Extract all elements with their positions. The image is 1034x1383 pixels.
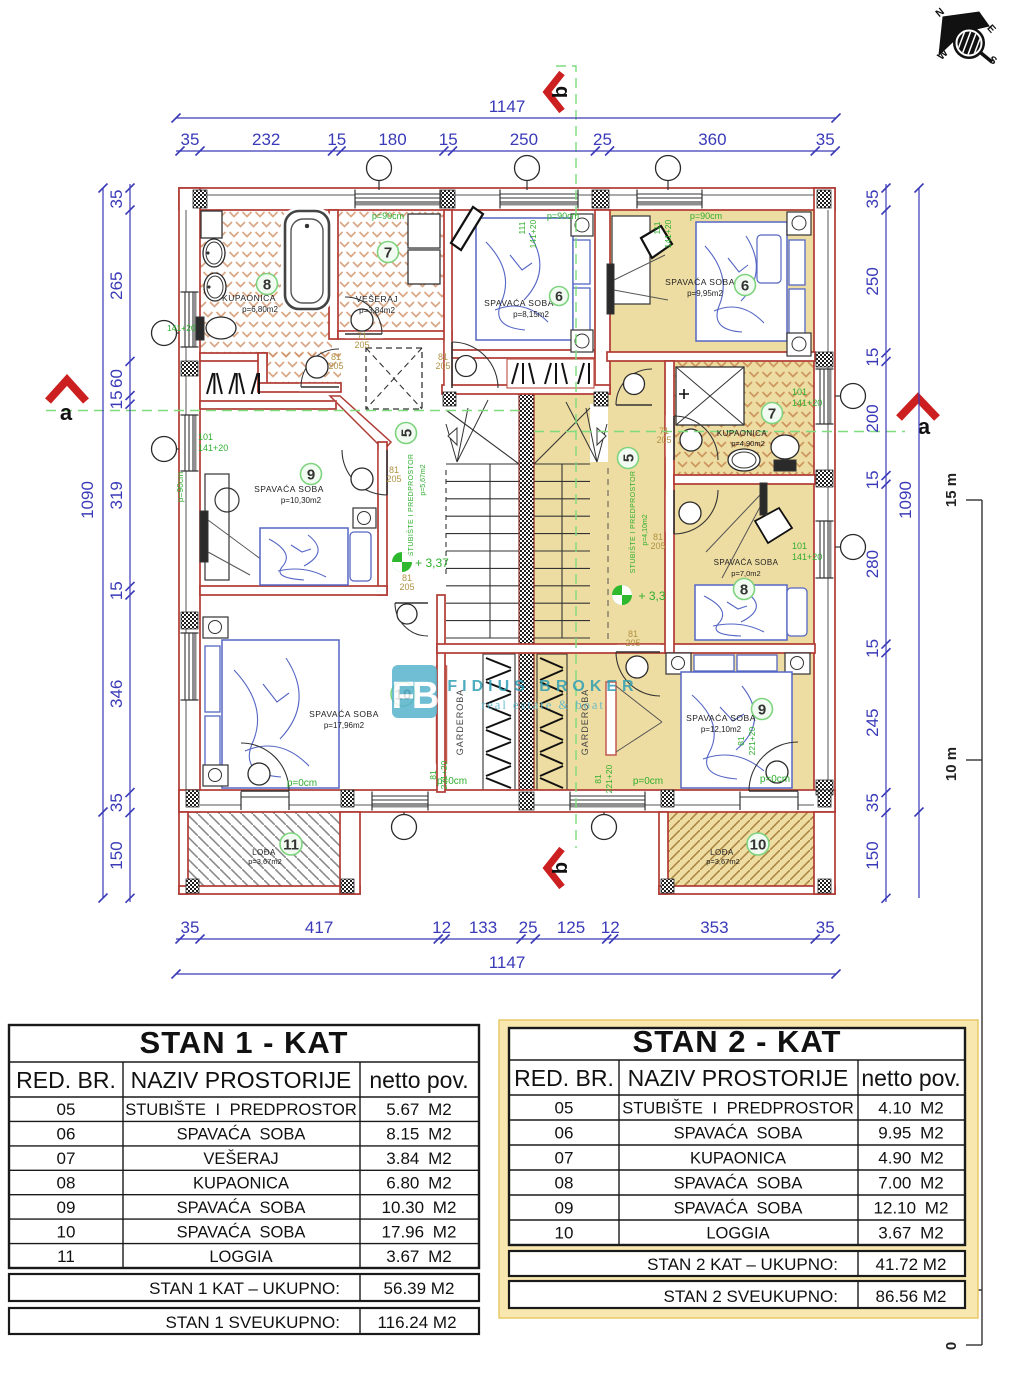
svg-text:KUPAONICA: KUPAONICA bbox=[222, 293, 276, 303]
svg-text:09: 09 bbox=[555, 1199, 574, 1218]
svg-text:KUPAONICA: KUPAONICA bbox=[690, 1150, 786, 1168]
svg-text:NAZIV PROSTORIJE: NAZIV PROSTORIJE bbox=[628, 1065, 849, 1091]
svg-text:141+20: 141+20 bbox=[792, 398, 822, 408]
svg-text:3.67 M2: 3.67 M2 bbox=[386, 1247, 451, 1266]
svg-text:205: 205 bbox=[328, 361, 343, 371]
svg-text:150: 150 bbox=[107, 841, 126, 869]
svg-text:17.96 M2: 17.96 M2 bbox=[382, 1222, 457, 1241]
svg-text:10 m: 10 m bbox=[943, 747, 960, 781]
svg-text:RED. BR.: RED. BR. bbox=[514, 1065, 614, 1091]
svg-text:VEŠERAJ: VEŠERAJ bbox=[203, 1149, 278, 1168]
svg-text:3.84 M2: 3.84 M2 bbox=[386, 1149, 451, 1168]
svg-text:5: 5 bbox=[620, 454, 637, 462]
svg-text:250: 250 bbox=[510, 130, 538, 149]
svg-text:p=0cm: p=0cm bbox=[287, 778, 317, 789]
svg-text:205: 205 bbox=[435, 361, 450, 371]
svg-text:35: 35 bbox=[181, 130, 200, 149]
svg-text:11: 11 bbox=[57, 1247, 75, 1266]
svg-text:150: 150 bbox=[863, 841, 882, 869]
svg-text:SPAVAĆA SOBA: SPAVAĆA SOBA bbox=[674, 1199, 803, 1218]
svg-text:15: 15 bbox=[107, 390, 126, 409]
svg-text:4.90 M2: 4.90 M2 bbox=[878, 1149, 943, 1168]
svg-text:221+20: 221+20 bbox=[747, 726, 757, 755]
svg-text:15: 15 bbox=[327, 130, 346, 149]
svg-text:p=7,0m2: p=7,0m2 bbox=[731, 569, 760, 578]
svg-text:+ 3,37: + 3,37 bbox=[415, 556, 449, 570]
svg-text:06: 06 bbox=[555, 1124, 574, 1143]
svg-text:15: 15 bbox=[863, 348, 882, 367]
svg-text:56.39 M2: 56.39 M2 bbox=[384, 1279, 455, 1298]
svg-text:0: 0 bbox=[943, 1342, 960, 1350]
svg-text:1090: 1090 bbox=[78, 481, 97, 519]
svg-text:FB: FB bbox=[392, 675, 438, 717]
svg-text:360: 360 bbox=[698, 130, 726, 149]
svg-text:SPAVAĆA SOBA: SPAVAĆA SOBA bbox=[177, 1125, 306, 1144]
svg-text:141+20: 141+20 bbox=[198, 443, 228, 453]
svg-text:15 m: 15 m bbox=[943, 473, 960, 507]
svg-text:12: 12 bbox=[432, 918, 451, 937]
svg-text:15: 15 bbox=[107, 581, 126, 600]
svg-text:205: 205 bbox=[650, 541, 665, 551]
svg-text:b: b bbox=[550, 862, 572, 874]
svg-text:p=0cm: p=0cm bbox=[760, 774, 790, 785]
svg-text:10: 10 bbox=[750, 836, 767, 853]
svg-text:a: a bbox=[918, 414, 931, 439]
svg-text:180: 180 bbox=[378, 130, 406, 149]
svg-text:205: 205 bbox=[399, 582, 414, 592]
svg-text:417: 417 bbox=[305, 918, 333, 937]
svg-text:1147: 1147 bbox=[489, 953, 526, 972]
svg-text:125: 125 bbox=[557, 918, 585, 937]
svg-text:205: 205 bbox=[625, 638, 640, 648]
svg-text:SPAVAĆA SOBA: SPAVAĆA SOBA bbox=[177, 1222, 306, 1241]
svg-text:8: 8 bbox=[263, 276, 271, 293]
svg-text:101: 101 bbox=[792, 387, 807, 397]
svg-text:KUPAONICA: KUPAONICA bbox=[717, 429, 767, 438]
svg-text:FIDIUS BROKER: FIDIUS BROKER bbox=[447, 678, 638, 695]
svg-text:a: a bbox=[60, 400, 73, 425]
svg-text:p=90cm: p=90cm bbox=[547, 211, 579, 221]
svg-text:41.72 M2: 41.72 M2 bbox=[876, 1255, 947, 1274]
svg-text:9: 9 bbox=[758, 701, 766, 718]
svg-text:35: 35 bbox=[107, 190, 126, 209]
svg-text:353: 353 bbox=[700, 918, 728, 937]
svg-text:LOGGIA: LOGGIA bbox=[209, 1248, 272, 1266]
svg-text:p=90cm: p=90cm bbox=[175, 472, 185, 502]
svg-text:200: 200 bbox=[863, 404, 882, 432]
svg-text:7: 7 bbox=[384, 244, 392, 261]
svg-text:1090: 1090 bbox=[896, 481, 915, 519]
svg-text:VEŠERAJ: VEŠERAJ bbox=[356, 294, 398, 304]
svg-text:221+20: 221+20 bbox=[604, 764, 614, 793]
svg-text:07: 07 bbox=[57, 1149, 76, 1168]
svg-text:SPAVAĆA SOBA: SPAVAĆA SOBA bbox=[484, 298, 554, 308]
svg-text:141+20: 141+20 bbox=[792, 552, 822, 562]
svg-text:+ 3,3: + 3,3 bbox=[638, 589, 665, 603]
svg-text:6: 6 bbox=[741, 277, 749, 294]
svg-text:SPAVAĆA SOBA: SPAVAĆA SOBA bbox=[674, 1174, 803, 1193]
svg-text:LOĐA: LOĐA bbox=[710, 848, 734, 857]
svg-text:SPAVAĆA SOBA: SPAVAĆA SOBA bbox=[714, 558, 779, 567]
svg-text:RED. BR.: RED. BR. bbox=[16, 1067, 116, 1093]
svg-text:05: 05 bbox=[57, 1100, 76, 1119]
svg-text:205: 205 bbox=[354, 340, 369, 350]
svg-text:LOGGIA: LOGGIA bbox=[706, 1225, 769, 1243]
svg-text:141+20: 141+20 bbox=[663, 219, 673, 248]
svg-text:b: b bbox=[550, 86, 572, 98]
svg-text:p=9,95m2: p=9,95m2 bbox=[687, 289, 723, 298]
svg-text:280: 280 bbox=[863, 550, 882, 578]
svg-text:133: 133 bbox=[469, 918, 497, 937]
svg-text:35: 35 bbox=[863, 793, 882, 812]
svg-text:9: 9 bbox=[307, 466, 315, 483]
svg-text:SPAVAĆA SOBA: SPAVAĆA SOBA bbox=[686, 713, 756, 723]
svg-text:250: 250 bbox=[863, 267, 882, 295]
svg-text:p=4,10m2: p=4,10m2 bbox=[642, 514, 649, 545]
svg-text:p=8,15m2: p=8,15m2 bbox=[513, 310, 549, 319]
svg-text:35: 35 bbox=[181, 918, 200, 937]
svg-text:STAN 2 - KAT: STAN 2 - KAT bbox=[633, 1024, 842, 1059]
svg-text:5.67 M2: 5.67 M2 bbox=[386, 1100, 451, 1119]
svg-text:15: 15 bbox=[863, 639, 882, 658]
svg-text:60: 60 bbox=[107, 369, 126, 388]
svg-text:12: 12 bbox=[601, 918, 620, 937]
svg-text:GARDEROBA: GARDEROBA bbox=[455, 689, 465, 756]
svg-text:1147: 1147 bbox=[489, 97, 526, 116]
svg-text:35: 35 bbox=[863, 190, 882, 209]
svg-text:10: 10 bbox=[555, 1224, 574, 1243]
svg-text:STUBIŠTE I PREDPROSTOR: STUBIŠTE I PREDPROSTOR bbox=[628, 471, 637, 574]
svg-text:SPAVAĆA SOBA: SPAVAĆA SOBA bbox=[254, 484, 324, 494]
svg-text:205: 205 bbox=[656, 435, 671, 445]
svg-text:6: 6 bbox=[555, 288, 563, 304]
svg-text:35: 35 bbox=[816, 918, 835, 937]
svg-text:STAN 1 SVEUKUPNO:: STAN 1 SVEUKUPNO: bbox=[166, 1313, 340, 1332]
svg-text:p=10,30m2: p=10,30m2 bbox=[281, 496, 322, 505]
svg-text:141+20: 141+20 bbox=[528, 219, 538, 248]
svg-text:NAZIV PROSTORIJE: NAZIV PROSTORIJE bbox=[131, 1067, 352, 1093]
svg-text:81: 81 bbox=[593, 774, 603, 784]
svg-text:10.30 M2: 10.30 M2 bbox=[382, 1198, 457, 1217]
svg-text:205: 205 bbox=[386, 474, 401, 484]
svg-text:141+20: 141+20 bbox=[167, 323, 196, 333]
svg-text:netto pov.: netto pov. bbox=[369, 1067, 468, 1093]
svg-text:35: 35 bbox=[816, 130, 835, 149]
svg-text:265: 265 bbox=[107, 272, 126, 300]
svg-text:p=4,90m2: p=4,90m2 bbox=[731, 439, 765, 448]
svg-text:111: 111 bbox=[652, 221, 662, 234]
svg-text:LOĐA: LOĐA bbox=[252, 848, 276, 857]
svg-text:STAN 2 SVEUKUPNO:: STAN 2 SVEUKUPNO: bbox=[664, 1287, 838, 1306]
svg-text:245: 245 bbox=[863, 709, 882, 737]
svg-text:netto pov.: netto pov. bbox=[861, 1065, 960, 1091]
svg-text:08: 08 bbox=[57, 1174, 76, 1193]
svg-text:p=3,67m2: p=3,67m2 bbox=[706, 857, 740, 866]
svg-text:SPAVAĆA SOBA: SPAVAĆA SOBA bbox=[665, 277, 735, 287]
svg-text:7: 7 bbox=[768, 405, 776, 422]
svg-text:4.10 M2: 4.10 M2 bbox=[878, 1099, 943, 1118]
svg-text:STUBIŠTE I PREDPROSTOR: STUBIŠTE I PREDPROSTOR bbox=[622, 1099, 854, 1118]
svg-text:101: 101 bbox=[792, 541, 807, 551]
svg-text:KUPAONICA: KUPAONICA bbox=[193, 1175, 289, 1193]
svg-text:6.80 M2: 6.80 M2 bbox=[386, 1174, 451, 1193]
svg-text:07: 07 bbox=[555, 1149, 574, 1168]
svg-text:8.15 M2: 8.15 M2 bbox=[386, 1125, 451, 1144]
svg-text:8: 8 bbox=[740, 581, 748, 598]
svg-text:STAN 1 - KAT: STAN 1 - KAT bbox=[140, 1025, 349, 1060]
svg-text:25: 25 bbox=[593, 130, 612, 149]
svg-text:p=3,67m2: p=3,67m2 bbox=[248, 857, 282, 866]
svg-text:10: 10 bbox=[57, 1222, 76, 1241]
svg-text:SPAVAĆA SOBA: SPAVAĆA SOBA bbox=[309, 709, 379, 719]
svg-text:25: 25 bbox=[519, 918, 538, 937]
svg-text:p=90cm: p=90cm bbox=[690, 211, 722, 221]
svg-text:15: 15 bbox=[439, 130, 458, 149]
svg-text:p=0cm: p=0cm bbox=[633, 776, 663, 787]
svg-text:346: 346 bbox=[107, 680, 126, 708]
svg-text:232: 232 bbox=[252, 130, 280, 149]
svg-text:05: 05 bbox=[555, 1099, 574, 1118]
svg-text:9.95 M2: 9.95 M2 bbox=[878, 1124, 943, 1143]
svg-text:09: 09 bbox=[57, 1198, 76, 1217]
svg-text:5: 5 bbox=[398, 429, 415, 437]
svg-text:p=0cm: p=0cm bbox=[437, 776, 467, 787]
svg-text:11: 11 bbox=[283, 836, 299, 853]
svg-text:STAN 1 KAT – UKUPNO:: STAN 1 KAT – UKUPNO: bbox=[149, 1279, 340, 1298]
svg-text:101: 101 bbox=[198, 432, 213, 442]
svg-text:12.10 M2: 12.10 M2 bbox=[874, 1199, 949, 1218]
svg-text:81: 81 bbox=[736, 736, 746, 746]
svg-text:STUBIŠTE I PREDPROSTOR: STUBIŠTE I PREDPROSTOR bbox=[406, 454, 415, 557]
svg-text:3.67 M2: 3.67 M2 bbox=[878, 1224, 943, 1243]
svg-text:15: 15 bbox=[863, 470, 882, 489]
svg-text:08: 08 bbox=[555, 1174, 574, 1193]
svg-text:SPAVAĆA SOBA: SPAVAĆA SOBA bbox=[674, 1124, 803, 1143]
svg-text:7.00 M2: 7.00 M2 bbox=[878, 1174, 943, 1193]
svg-text:111: 111 bbox=[517, 221, 527, 234]
svg-text:319: 319 bbox=[107, 481, 126, 509]
svg-text:p=6,80m2: p=6,80m2 bbox=[242, 305, 278, 314]
svg-text:p=90cm: p=90cm bbox=[372, 211, 404, 221]
svg-text:p=3,84m2: p=3,84m2 bbox=[359, 306, 395, 315]
svg-text:86.56 M2: 86.56 M2 bbox=[876, 1287, 947, 1306]
svg-text:06: 06 bbox=[57, 1125, 76, 1144]
svg-text:116.24 M2: 116.24 M2 bbox=[377, 1313, 456, 1332]
svg-text:STAN 2 KAT – UKUPNO:: STAN 2 KAT – UKUPNO: bbox=[647, 1255, 838, 1274]
svg-text:p=17,96m2: p=17,96m2 bbox=[324, 721, 365, 730]
svg-text:STUBIŠTE I PREDPROSTOR: STUBIŠTE I PREDPROSTOR bbox=[125, 1100, 357, 1119]
svg-text:p=5,67m2: p=5,67m2 bbox=[420, 464, 427, 495]
svg-text:SPAVAĆA SOBA: SPAVAĆA SOBA bbox=[177, 1198, 306, 1217]
svg-text:35: 35 bbox=[107, 793, 126, 812]
svg-text:real estate & boat: real estate & boat bbox=[481, 698, 605, 712]
svg-text:p=12,10m2: p=12,10m2 bbox=[701, 725, 742, 734]
